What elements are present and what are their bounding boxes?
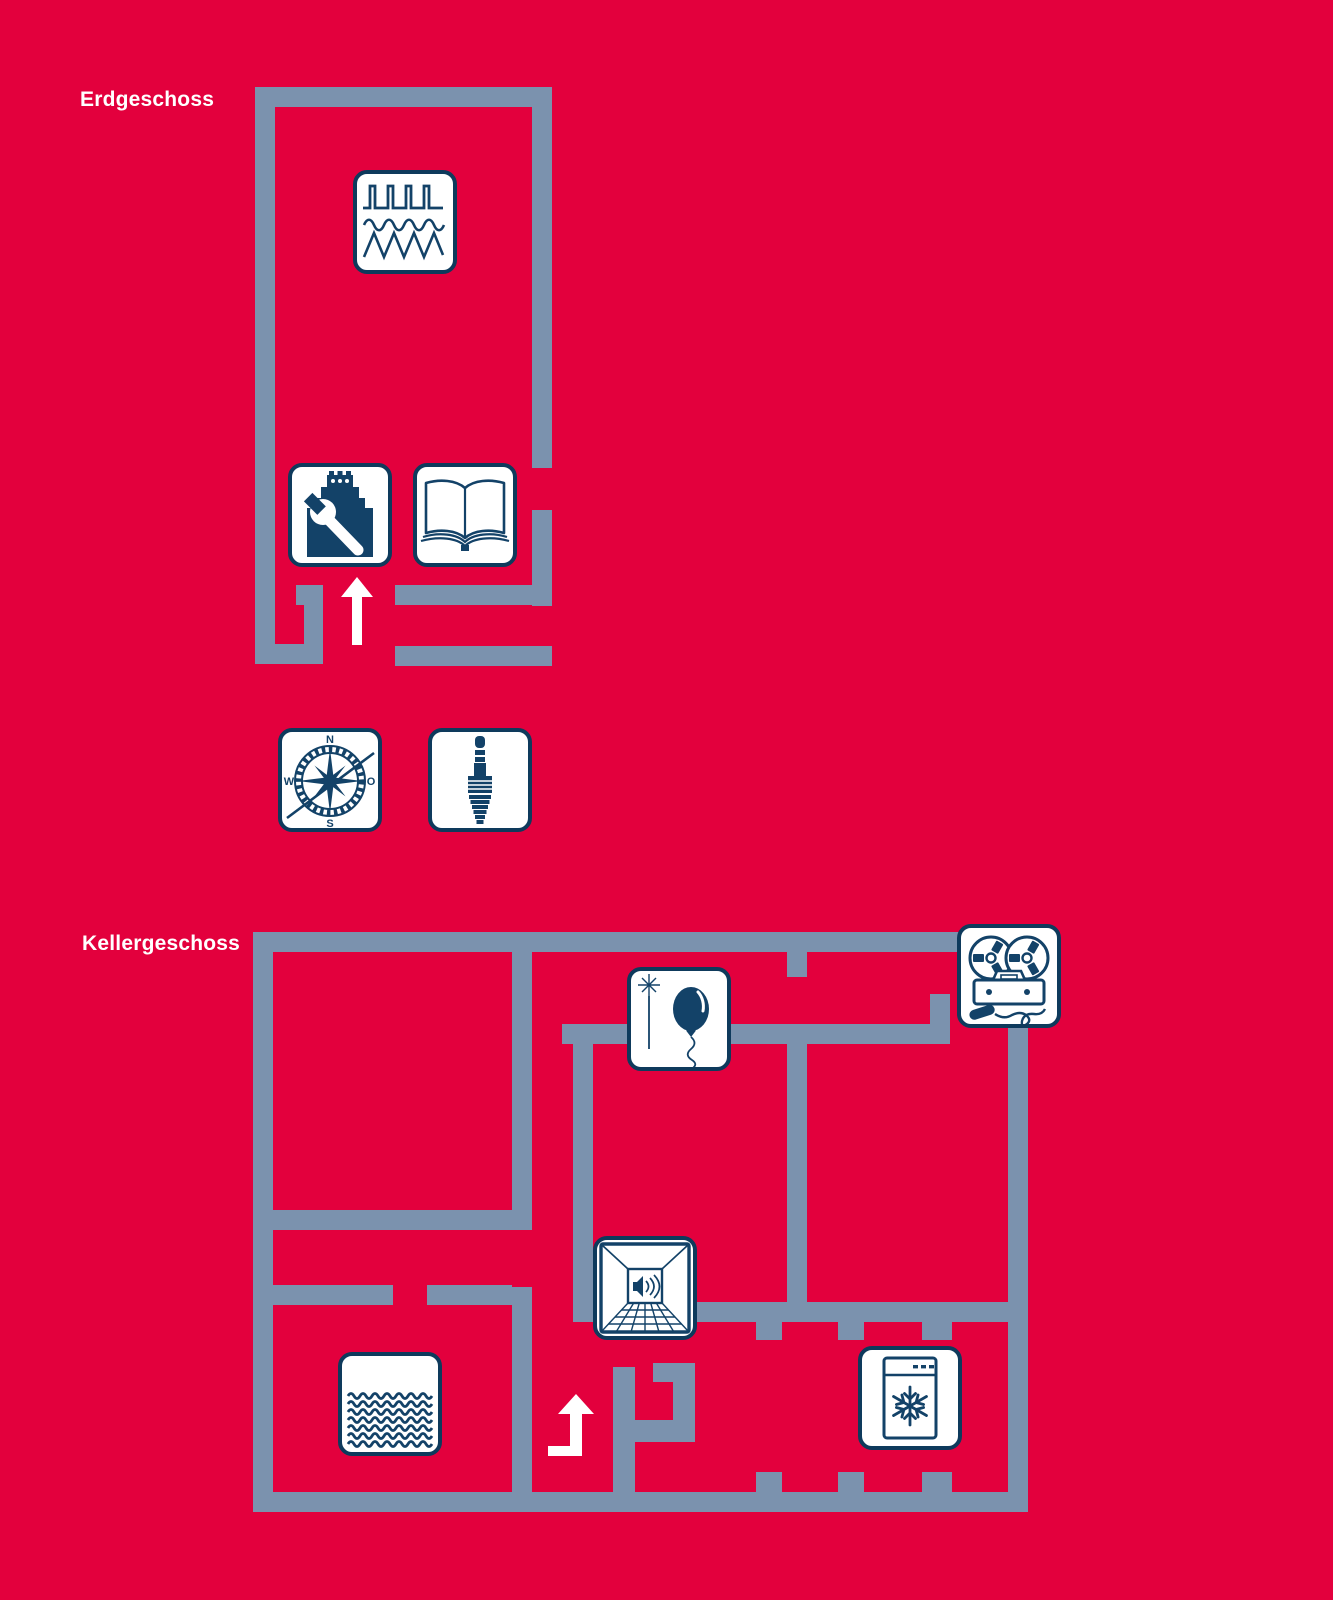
wall-segment (395, 646, 552, 666)
floor-label-kellergeschoss: Kellergeschoss (82, 932, 240, 956)
compass-south-label: S (326, 818, 333, 828)
audio-jack-icon (428, 728, 532, 832)
floor-label-erdgeschoss: Erdgeschoss (80, 88, 214, 112)
door-jamb (756, 1472, 782, 1492)
wall-segment (296, 585, 323, 605)
waveform-signals-icon (353, 170, 457, 274)
wall-segment (273, 1285, 393, 1305)
tower-wrench-workshop-icon (288, 463, 392, 567)
wall-segment (273, 1210, 512, 1230)
stairs-up-arrow (332, 577, 382, 647)
stair-wall (653, 1363, 673, 1382)
wall-segment (573, 1044, 593, 1302)
stair-wall (673, 1363, 695, 1442)
wall-segment (562, 1024, 950, 1044)
door-jamb (838, 1322, 864, 1340)
wall-segment (395, 585, 552, 605)
wall-segment (253, 932, 1028, 952)
wall-segment (304, 605, 323, 664)
wall-segment (427, 1285, 512, 1305)
wall-segment (253, 932, 273, 1512)
compass-east-label: O (367, 776, 376, 788)
wall-segment (512, 1287, 532, 1492)
floor-plan-page: Erdgeschoss (0, 0, 1333, 1600)
speaker-corridor-icon (593, 1236, 697, 1340)
magic-wand-balloon-icon (627, 967, 731, 1071)
wall-segment (787, 952, 807, 977)
door-jamb (922, 1472, 952, 1492)
compass-rose-icon: N W O S (278, 728, 382, 832)
compass-west-label: W (284, 776, 295, 788)
wall-segment (787, 1044, 807, 1302)
door-jamb (756, 1322, 782, 1340)
compass-north-label: N (326, 734, 334, 746)
stair-wall (635, 1420, 673, 1442)
stair-wall (613, 1367, 635, 1492)
wall-segment (532, 510, 552, 606)
wall-segment (255, 87, 275, 664)
bent-stairs-up-arrow (545, 1394, 597, 1460)
wall-segment (512, 952, 532, 1230)
open-book-icon (413, 463, 517, 567)
wall-segment (255, 87, 552, 107)
wall-segment (930, 994, 950, 1024)
door-jamb (922, 1322, 952, 1340)
reel-tape-recorder-microphone-icon (957, 924, 1061, 1028)
freezer-snowflake-icon (858, 1346, 962, 1450)
wall-segment (532, 87, 552, 468)
door-jamb (838, 1472, 864, 1492)
wall-segment (253, 1492, 1028, 1512)
water-basin-icon (338, 1352, 442, 1456)
